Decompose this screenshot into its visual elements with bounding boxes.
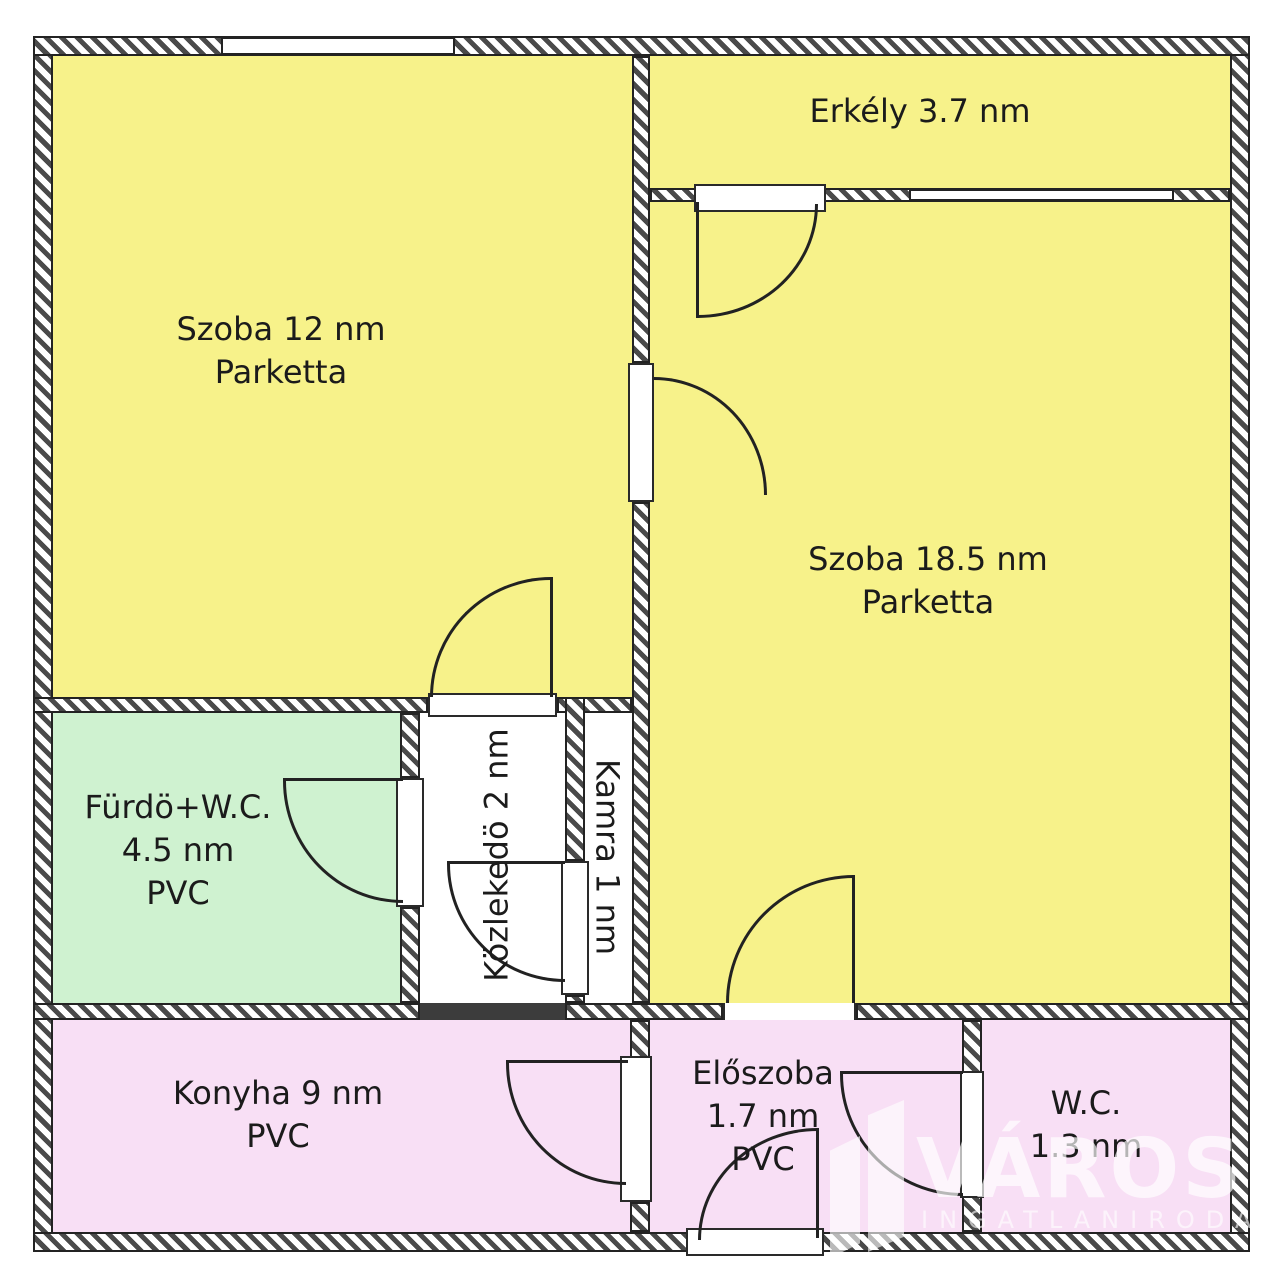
label-eloszoba: Előszoba 1.7 nm PVC	[692, 1052, 834, 1181]
wall-outer-left	[33, 36, 53, 1252]
varosi-logo-right-slab	[868, 1100, 904, 1252]
label-furdo: Fürdö+W.C. 4.5 nm PVC	[85, 786, 272, 915]
label-eloszoba-area: 1.7 nm	[692, 1095, 834, 1138]
label-szoba18-floor: Parketta	[808, 581, 1048, 624]
wall-outer-right	[1230, 36, 1250, 1252]
watermark-title: VÁROSI	[916, 1122, 1278, 1217]
watermark-subtitle: INGATLANIRODA	[921, 1206, 1262, 1234]
wall-konyha-eloszoba-b	[630, 1202, 650, 1232]
wall-kamra-left-a	[565, 697, 585, 861]
wall-outer-top-a	[33, 36, 223, 56]
window-erkely	[911, 188, 1172, 202]
label-kozlekedo-name: Közlekedö 2 nm	[476, 728, 519, 981]
label-furdo-floor: PVC	[85, 872, 272, 915]
wall-erkely-c	[1172, 188, 1230, 202]
wall-kamra-left-b	[565, 995, 585, 1003]
wall-furdo-right-b	[400, 907, 420, 1003]
wall-outer-bottom-a	[33, 1232, 688, 1252]
label-eloszoba-floor: PVC	[692, 1138, 834, 1181]
wall-mid-b	[565, 1003, 723, 1020]
door-opening-szoba18-eloszoba	[723, 1003, 856, 1020]
wall-erkely-a	[650, 188, 698, 202]
window-szoba12	[223, 36, 453, 56]
label-konyha-floor: PVC	[173, 1115, 383, 1158]
label-furdo-area: 4.5 nm	[85, 829, 272, 872]
wall-mid-a	[33, 1003, 420, 1020]
label-kamra: Kamra 1 nm	[586, 759, 629, 955]
floor-plan: Szoba 12 nm Parketta Erkély 3.7 nm Szoba…	[0, 0, 1283, 1280]
wall-eloszoba-wc-a	[962, 1020, 982, 1073]
label-konyha: Konyha 9 nm PVC	[173, 1072, 383, 1158]
varosi-logo-icon	[830, 1100, 910, 1258]
label-szoba12-name: Szoba 12 nm	[176, 308, 385, 351]
label-wc-name: W.C.	[1030, 1082, 1143, 1125]
varosi-logo-left-slab	[830, 1136, 860, 1258]
label-szoba18-name: Szoba 18.5 nm	[808, 538, 1048, 581]
label-szoba12-floor: Parketta	[176, 351, 385, 394]
wall-szoba12-bottom-a	[33, 697, 428, 713]
wall-mid-kozlekedo	[420, 1003, 565, 1020]
label-szoba18: Szoba 18.5 nm Parketta	[808, 538, 1048, 624]
wall-outer-top-b	[453, 36, 1250, 56]
door-frame-szoba12-szoba18	[628, 363, 654, 502]
wall-mid-c	[856, 1003, 1250, 1020]
label-konyha-name: Konyha 9 nm	[173, 1072, 383, 1115]
wall-divider-lower	[632, 502, 650, 1003]
label-erkely: Erkély 3.7 nm	[810, 90, 1031, 133]
wall-furdo-right-a	[400, 713, 420, 778]
wall-erkely-b	[822, 188, 911, 202]
label-furdo-name: Fürdö+W.C.	[85, 786, 272, 829]
label-kamra-name: Kamra 1 nm	[586, 759, 629, 955]
wall-konyha-eloszoba-a	[630, 1020, 650, 1058]
label-erkely-name: Erkély 3.7 nm	[810, 90, 1031, 133]
label-szoba12: Szoba 12 nm Parketta	[176, 308, 385, 394]
label-kozlekedo: Közlekedö 2 nm	[476, 728, 519, 981]
wall-divider-upper	[632, 56, 650, 363]
label-eloszoba-name: Előszoba	[692, 1052, 834, 1095]
